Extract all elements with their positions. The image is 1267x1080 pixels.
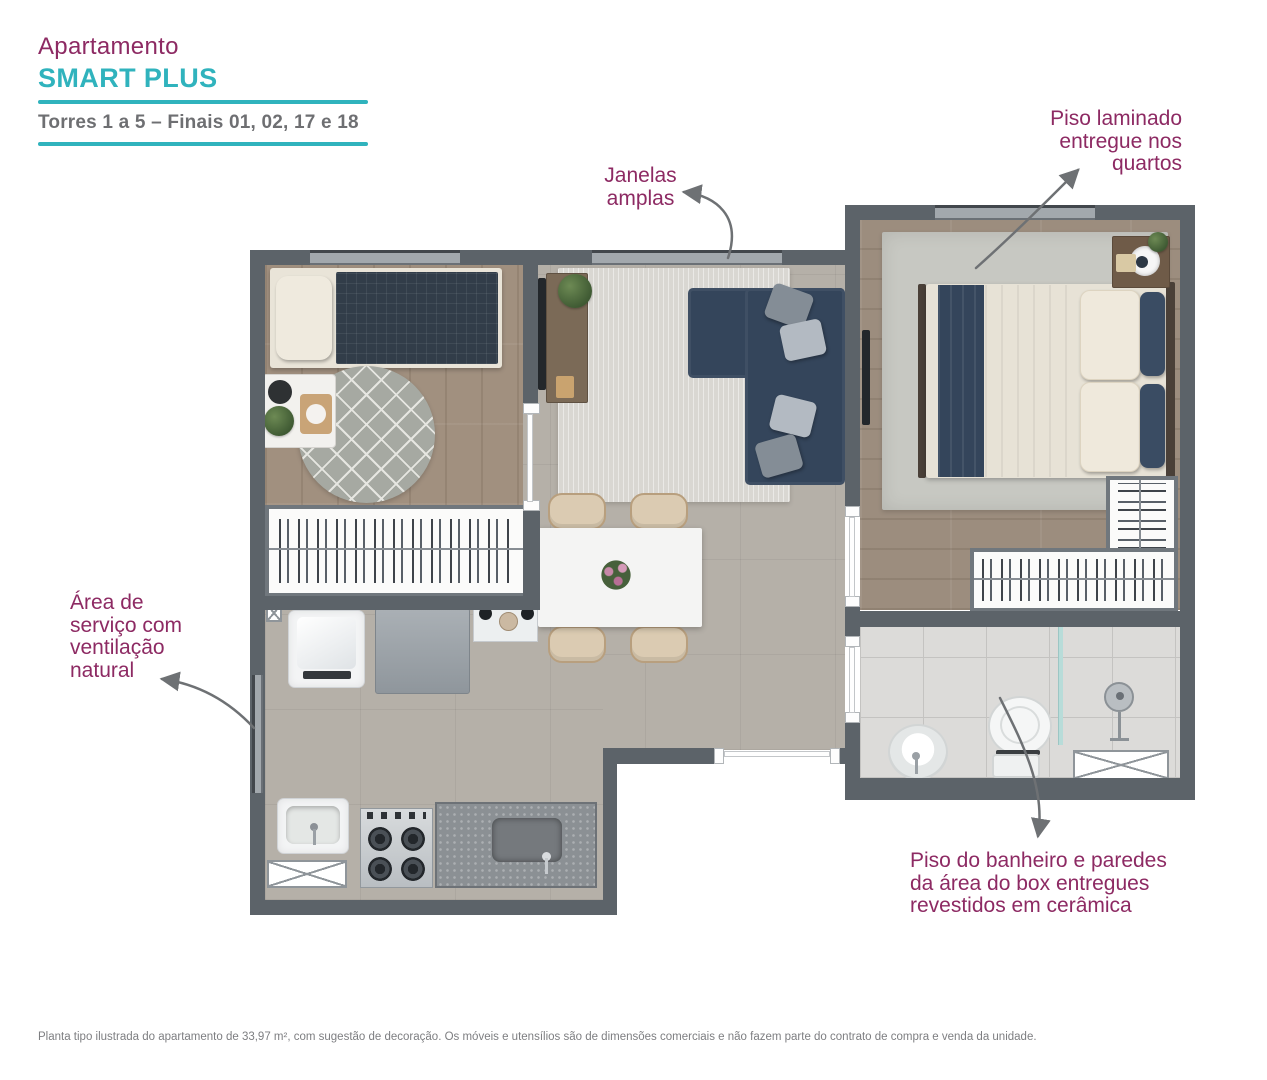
annotation-laminate-floor: Piso laminado entregue nos quartos: [998, 108, 1182, 176]
annotation-windows: Janelas amplas: [583, 165, 698, 210]
annotation-bathroom-floor: Piso do banheiro e paredes da área do bo…: [910, 850, 1210, 918]
arrow-bathroom: [1000, 698, 1040, 836]
floor-plan-page: Apartamento SMART PLUS Torres 1 a 5 – Fi…: [0, 0, 1267, 1080]
arrow-service: [162, 679, 254, 728]
arrow-laminate: [976, 170, 1078, 268]
annotation-service-area: Área de serviço com ventilação natural: [70, 592, 230, 683]
disclaimer-text: Planta tipo ilustrada do apartamento de …: [38, 1031, 1248, 1043]
